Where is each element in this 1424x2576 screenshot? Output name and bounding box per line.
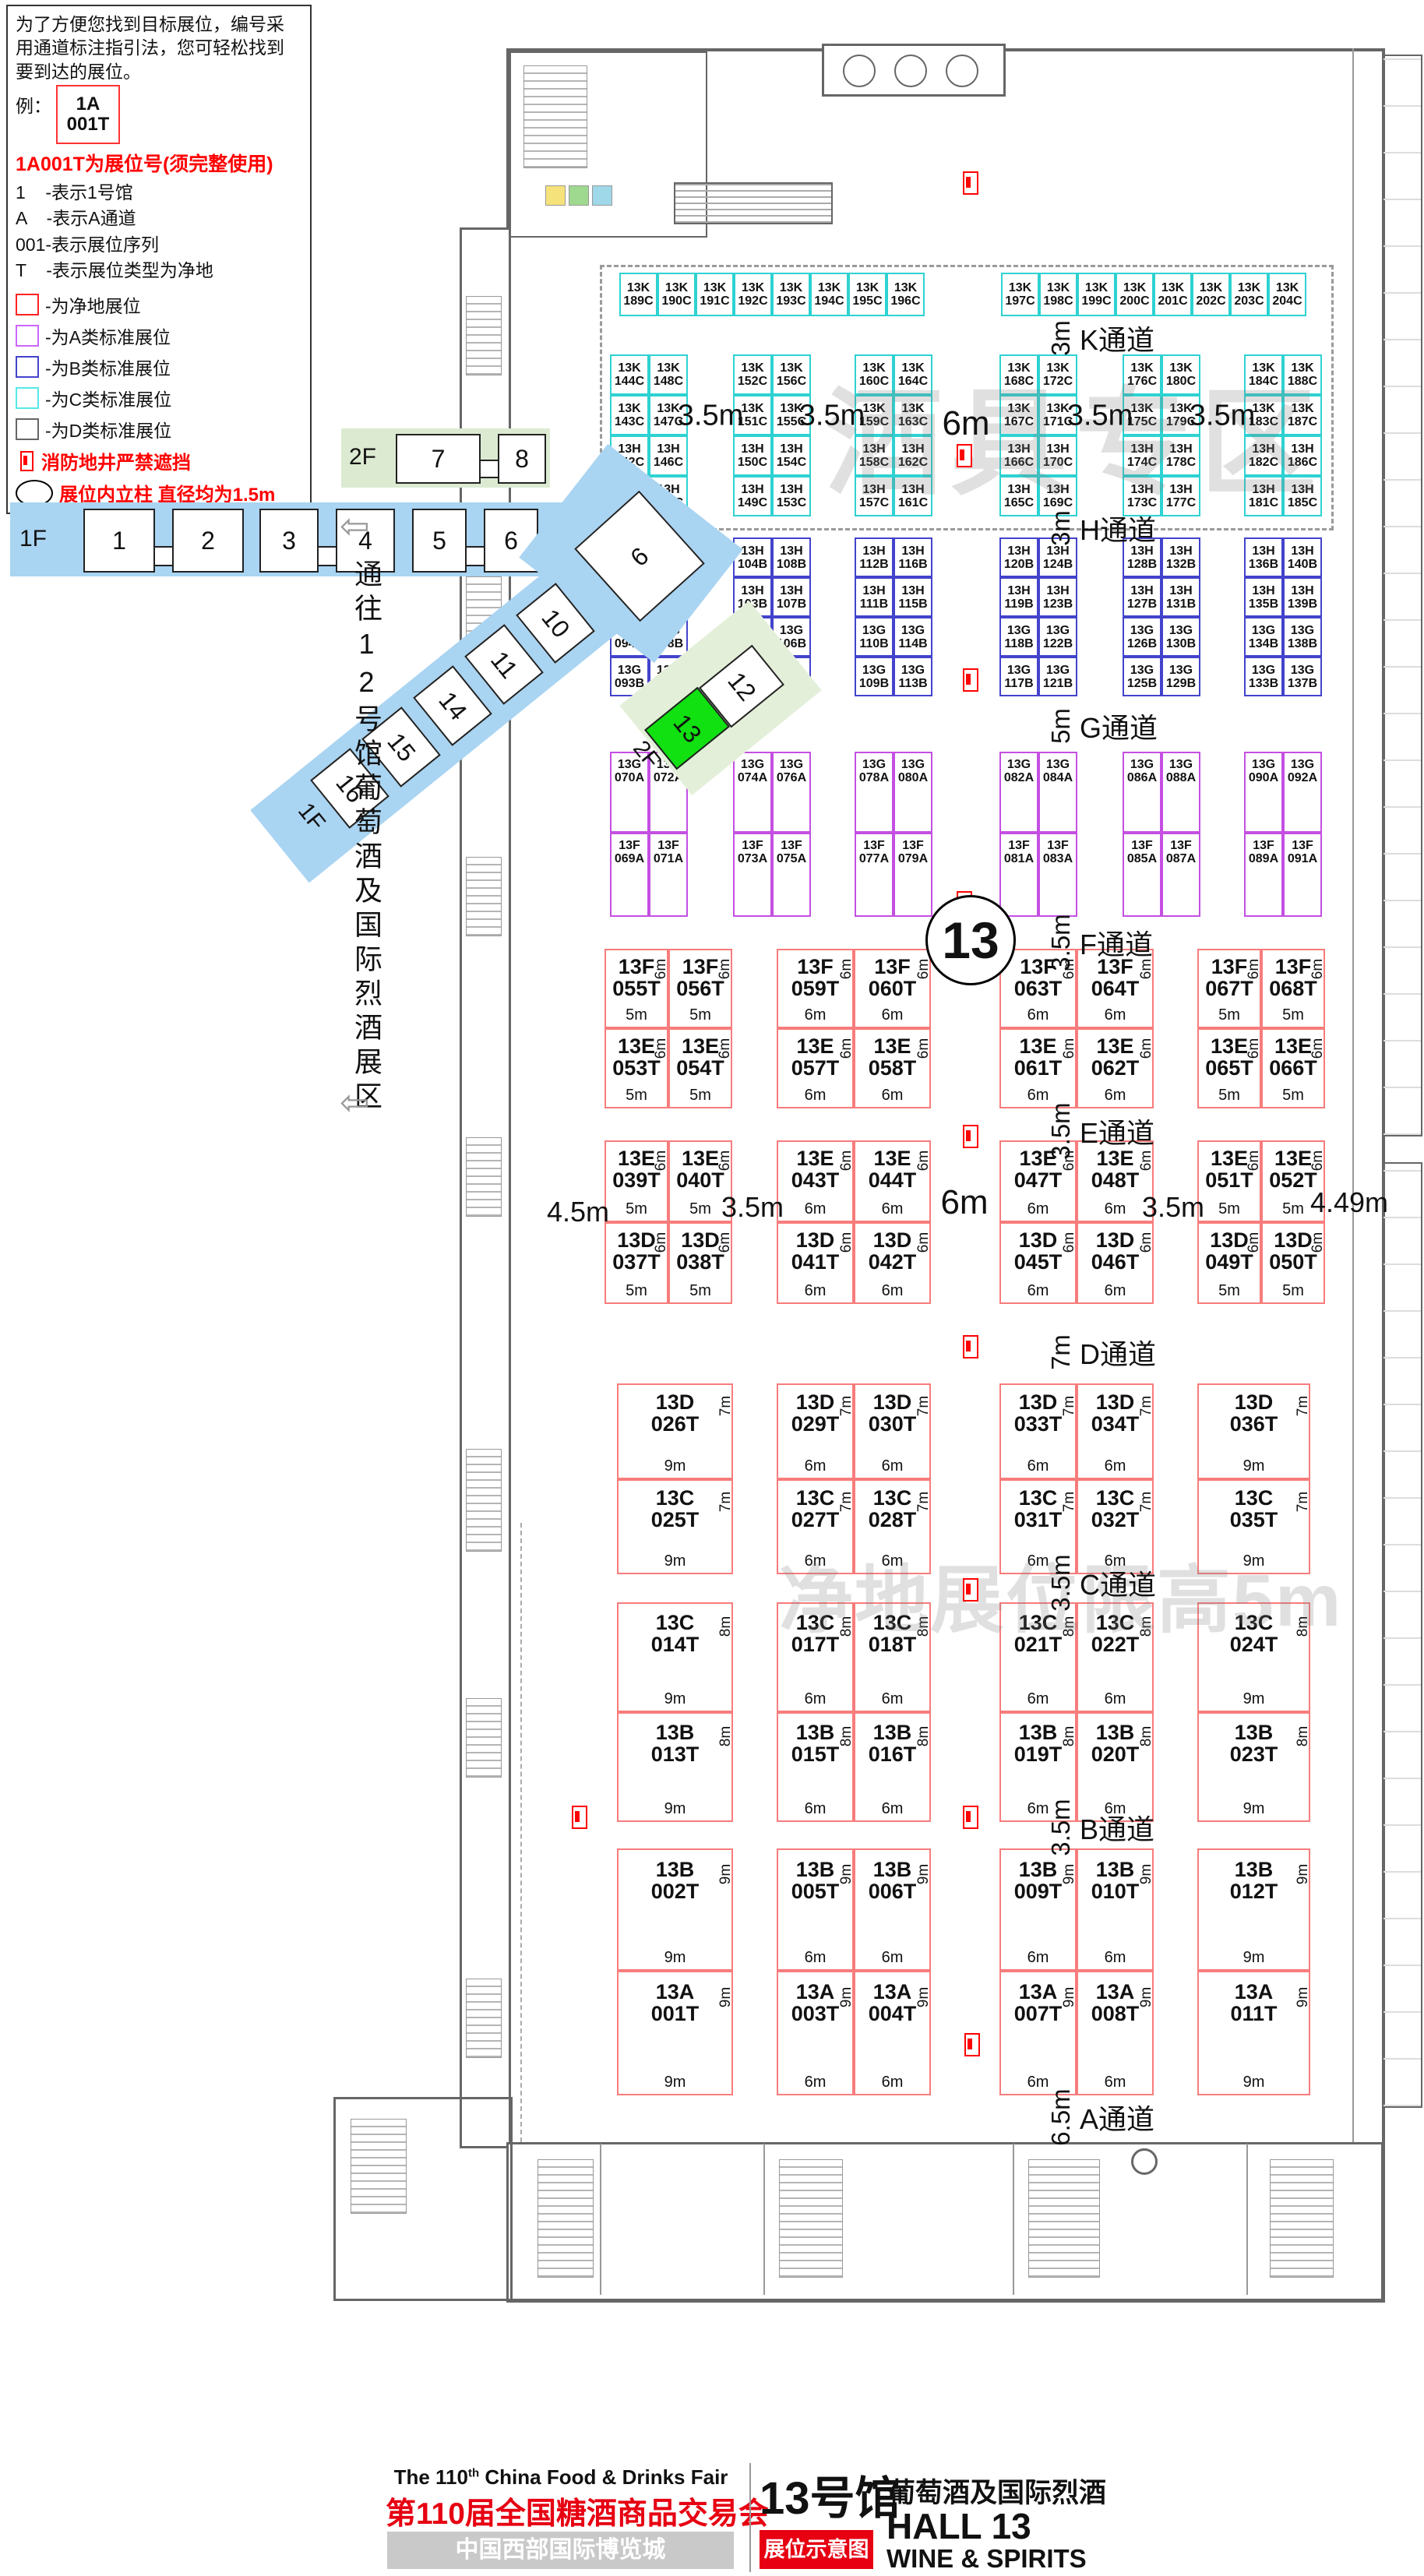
dimension-label: 6m — [940, 1183, 988, 1222]
booth-13B023T: 13B023T8m9m — [1197, 1712, 1310, 1822]
booth-id: 13G074A — [738, 753, 767, 784]
booth-13E065T: 13E065T6m5m — [1197, 1028, 1261, 1108]
booth-13G092A: 13G092A — [1283, 752, 1322, 833]
booth-id: 13G110B — [859, 624, 888, 650]
booth-13D046T: 13D046T6m6m — [1077, 1222, 1154, 1304]
fire-well-icon — [963, 1335, 978, 1358]
booth-id: 13K144C — [615, 361, 644, 388]
hall-right-inner-wall — [1352, 48, 1354, 2296]
legend-swatch-label: -为D类标准展位 — [45, 416, 171, 442]
booth-width-label: 5m — [1263, 1087, 1324, 1105]
booth-13H132B: 13H132B — [1161, 537, 1200, 577]
legend-example-label: 例： — [16, 91, 51, 118]
booth-width-label: 5m — [1263, 1282, 1324, 1300]
booth-width-label: 6m — [1001, 1006, 1075, 1024]
booth-width-label: 6m — [778, 1800, 852, 1818]
booth-13G109B: 13G109B — [855, 657, 894, 696]
booth-13K148C: 13K148C — [649, 354, 688, 395]
booth-13G129B: 13G129B — [1161, 657, 1200, 696]
booth-13F055T: 13F055T6m5m — [604, 949, 668, 1028]
booth-depth-label: 7m — [1295, 1486, 1310, 1517]
aisle-width-K通道: 3m — [1047, 295, 1075, 381]
booth-13G088A: 13G088A — [1161, 752, 1200, 833]
fire-well-icon — [963, 171, 978, 195]
booth-13F069A: 13F069A — [610, 833, 649, 917]
booth-depth-label: 7m — [1295, 1390, 1310, 1422]
booth-depth-label: 9m — [1138, 1859, 1154, 1890]
minimap-hall-8: 8 — [498, 434, 546, 484]
booth-id: 13H146C — [654, 442, 683, 469]
plan-badge: 展位示意图 — [760, 2530, 873, 2569]
booth-id: 13H120B — [1004, 544, 1034, 571]
revolving-door — [894, 55, 927, 87]
booth-id: 13G093B — [615, 664, 644, 690]
booth-13G110B: 13G110B — [855, 617, 894, 657]
booth-width-label: 9m — [619, 1457, 731, 1475]
booth-13C014T: 13C014T8m9m — [617, 1602, 733, 1712]
hall-number-circle: 13 — [925, 895, 1016, 985]
booth-depth-label: 6m — [1246, 1145, 1261, 1176]
booth-width-label: 6m — [778, 1949, 852, 1967]
booth-id: 13G090A — [1249, 753, 1278, 784]
booth-id: 13H149C — [738, 483, 767, 509]
booth-13H115B: 13H115B — [894, 577, 932, 617]
stairwell — [466, 1698, 502, 1778]
booth-id: 13G125B — [1127, 664, 1157, 690]
booth-13F073A: 13F073A — [733, 833, 772, 917]
booth-depth-label: 6m — [653, 1145, 668, 1176]
booth-id: 13G078A — [859, 753, 889, 784]
booth-13H149C: 13H149C — [733, 476, 772, 516]
booth-width-label: 9m — [1199, 1457, 1309, 1475]
booth-width-label: 6m — [1001, 1282, 1075, 1300]
booth-width-label: 5m — [670, 1087, 731, 1105]
booth-depth-label: 6m — [1246, 953, 1261, 985]
booth-width-label: 6m — [778, 1006, 852, 1024]
booth-13D050T: 13D050T6m5m — [1261, 1222, 1325, 1304]
hall-title-en: HALL 13 — [886, 2505, 1031, 2547]
booth-width-label: 5m — [606, 1006, 667, 1024]
stairwell — [538, 2159, 594, 2278]
fire-well-icon — [964, 2033, 980, 2056]
booth-13A004T: 13A004T9m6m — [854, 1971, 931, 2095]
legend-swatch-row: -为A类标准展位 — [16, 322, 302, 349]
hall-title-cn: 13号馆 — [760, 2461, 901, 2527]
booth-depth-label: 9m — [1295, 1859, 1310, 1890]
booth-depth-label: 6m — [838, 1145, 854, 1176]
booth-13G122B: 13G122B — [1038, 617, 1077, 657]
booth-depth-label: 7m — [838, 1390, 854, 1422]
booth-depth-label: 9m — [838, 1982, 854, 2013]
booth-13G082A: 13G082A — [999, 752, 1038, 833]
booth-id: 13F073A — [738, 834, 767, 865]
booth-width-label: 5m — [606, 1282, 667, 1300]
booth-id: 13F077A — [859, 834, 889, 865]
booth-13G086A: 13G086A — [1123, 752, 1161, 833]
aisle-label-K通道: K通道 — [1080, 318, 1154, 358]
legend-swatch-label: -为A类标准展位 — [45, 322, 171, 349]
booth-13H136B: 13H136B — [1244, 537, 1283, 577]
booth-13K201C: 13K201C — [1154, 273, 1192, 316]
booth-id: 13G129B — [1166, 664, 1196, 690]
booth-id: 13H107B — [777, 584, 806, 611]
booth-13B010T: 13B010T9m6m — [1077, 1848, 1154, 1971]
booth-depth-label: 6m — [1309, 1145, 1325, 1176]
minimap-connector — [317, 546, 337, 566]
booth-id: 13A011T — [1199, 1981, 1309, 2025]
booth-13E057T: 13E057T6m6m — [777, 1028, 854, 1108]
booth-13D037T: 13D037T6m5m — [604, 1222, 668, 1304]
booth-depth-label: 9m — [1138, 1982, 1154, 2013]
booth-depth-label: 6m — [915, 1033, 931, 1064]
bottom-room-divider — [1246, 2144, 1248, 2295]
fair-title-cn: 第110届全国糖酒商品交易会 — [386, 2490, 736, 2533]
dimension-label: 3.5m — [799, 400, 865, 433]
booth-depth-label: 8m — [1295, 1721, 1310, 1752]
booth-id: 13H150C — [738, 442, 767, 469]
service-room-marker — [545, 185, 566, 206]
legend-swatch-label: -为B类标准展位 — [45, 354, 171, 380]
booth-id: 13F085A — [1127, 834, 1157, 865]
aisle-width-G通道: 5m — [1047, 683, 1075, 769]
booth-width-label: 6m — [1078, 1006, 1152, 1024]
booth-13E043T: 13E043T6m6m — [777, 1140, 854, 1222]
booth-width-label: 6m — [855, 1949, 929, 1967]
booth-13H131B: 13H131B — [1161, 577, 1200, 617]
booth-depth-label: 6m — [915, 1227, 931, 1258]
stairwell — [523, 65, 587, 168]
aisle-label-E通道: E通道 — [1080, 1111, 1154, 1151]
service-room-marker — [569, 185, 589, 206]
legend-intro-line: 用通道标注指引法，您可轻松找到 — [16, 36, 302, 59]
booth-13G080A: 13G080A — [894, 752, 932, 833]
booth-depth-label: 6m — [838, 1033, 854, 1064]
booth-13B006T: 13B006T9m6m — [854, 1848, 931, 1971]
booth-id: 13H115B — [898, 584, 927, 611]
stairwell — [466, 1137, 502, 1217]
booth-13B005T: 13B005T9m6m — [777, 1848, 854, 1971]
booth-13H127B: 13H127B — [1123, 577, 1161, 617]
booth-13H140B: 13H140B — [1283, 537, 1322, 577]
booth-13E051T: 13E051T6m5m — [1197, 1140, 1261, 1222]
booth-width-label: 5m — [1199, 1006, 1260, 1024]
booth-depth-label: 9m — [838, 1859, 854, 1890]
booth-width-label: 5m — [670, 1006, 731, 1024]
booth-width-label: 6m — [855, 1800, 929, 1818]
booth-13F081A: 13F081A — [999, 833, 1038, 917]
booth-13E039T: 13E039T6m5m — [604, 1140, 668, 1222]
booth-depth-label: 6m — [1061, 1033, 1077, 1064]
booth-13F089A: 13F089A — [1244, 833, 1283, 917]
booth-width-label: 5m — [606, 1087, 667, 1105]
booth-id: 13G113B — [898, 664, 927, 690]
booth-13D026T: 13D026T7m9m — [617, 1383, 733, 1479]
revolving-door — [946, 55, 978, 87]
stairwell — [466, 857, 502, 936]
booth-13A011T: 13A011T9m9m — [1197, 1971, 1310, 2095]
booth-13K203C: 13K203C — [1230, 273, 1268, 316]
booth-id: 13G082A — [1004, 753, 1034, 784]
booth-depth-label: 6m — [653, 1227, 668, 1258]
booth-13E066T: 13E066T6m5m — [1261, 1028, 1325, 1108]
route-arrow-up: ⇦ — [340, 505, 370, 547]
booth-13K152C: 13K152C — [733, 354, 772, 395]
booth-id: 13F075A — [777, 834, 806, 865]
booth-id: 13H111B — [860, 584, 888, 611]
booth-id: 13G109B — [859, 664, 889, 690]
booth-13K190C: 13K190C — [657, 273, 696, 316]
booth-13H108B: 13H108B — [772, 537, 811, 577]
booth-13G090A: 13G090A — [1244, 752, 1283, 833]
booth-width-label: 9m — [619, 2074, 731, 2091]
booth-width-label: 6m — [1078, 1087, 1152, 1105]
legend-swatch-label: -为净地展位 — [45, 291, 141, 318]
booth-depth-label: 9m — [1061, 1982, 1077, 2013]
booth-13E062T: 13E062T6m6m — [1077, 1028, 1154, 1108]
column — [1131, 2148, 1158, 2175]
booth-13E053T: 13E053T6m5m — [604, 1028, 668, 1108]
booth-width-label: 5m — [670, 1282, 731, 1300]
legend-swatch — [16, 387, 39, 409]
booth-width-label: 6m — [1001, 1457, 1075, 1475]
booth-width-label: 6m — [778, 1457, 852, 1475]
booth-13B020T: 13B020T8m6m — [1077, 1712, 1154, 1822]
booth-id: 13K195C — [852, 281, 882, 308]
dimension-label: 3.5m — [1067, 400, 1133, 433]
booth-13D034T: 13D034T7m6m — [1077, 1383, 1154, 1479]
booth-width-label: 5m — [1263, 1006, 1324, 1024]
booth-id: 13H123B — [1043, 584, 1073, 611]
fire-well-icon — [963, 1125, 978, 1148]
booth-13F087A: 13F087A — [1161, 833, 1200, 917]
booth-width-label: 6m — [855, 1690, 929, 1708]
stairwell — [779, 2159, 843, 2278]
bottom-room-divider — [1013, 2144, 1014, 2295]
booth-13F071A: 13F071A — [649, 833, 688, 917]
booth-13H154C: 13H154C — [772, 435, 811, 476]
booth-width-label: 6m — [778, 2074, 852, 2091]
booth-width-label: 6m — [778, 1200, 852, 1218]
booth-13H135B: 13H135B — [1244, 577, 1283, 617]
bottom-rooms — [506, 2142, 1383, 2301]
booth-id: 13H154C — [777, 442, 806, 469]
booth-id: 13F083A — [1043, 834, 1073, 865]
booth-id: 13D036T — [1199, 1391, 1309, 1435]
legend-line: 001-表示展位序列 — [16, 232, 302, 258]
booth-depth-label: 6m — [1309, 1033, 1325, 1064]
booth-13F059T: 13F059T6m6m — [777, 949, 854, 1028]
booth-width-label: 6m — [778, 1087, 852, 1105]
legend-swatch-row: -为C类标准展位 — [16, 385, 302, 411]
booth-id: 13K191C — [700, 281, 729, 308]
booth-13D036T: 13D036T7m9m — [1197, 1383, 1310, 1479]
booth-13B013T: 13B013T8m9m — [617, 1712, 733, 1822]
booth-depth-label: 9m — [717, 1859, 733, 1890]
booth-id: 13G092A — [1288, 753, 1317, 784]
service-room-marker — [592, 185, 612, 206]
booth-width-label: 6m — [1078, 1282, 1152, 1300]
stairwell — [466, 296, 502, 375]
booth-width-label: 6m — [1078, 1949, 1152, 1967]
booth-id: 13K152C — [738, 361, 767, 388]
right-annex-upper — [1382, 55, 1422, 1136]
aisle-width-D通道: 7m — [1047, 1309, 1075, 1395]
booth-id: 13H116B — [898, 544, 927, 571]
stairwell — [1270, 2159, 1334, 2278]
booth-id: 13H108B — [777, 544, 806, 571]
booth-13K204C: 13K204C — [1268, 273, 1306, 316]
booth-depth-label: 7m — [838, 1486, 854, 1517]
bottom-room-divider — [763, 2144, 765, 2295]
booth-id: 13H135B — [1249, 584, 1278, 611]
right-annex-lower — [1382, 1162, 1422, 2108]
booth-depth-label: 6m — [1246, 1227, 1261, 1258]
minimap-hall-2: 2 — [172, 509, 244, 573]
booth-depth-label: 8m — [717, 1611, 733, 1642]
booth-depth-label: 9m — [915, 1859, 931, 1890]
booth-13H119B: 13H119B — [999, 577, 1038, 617]
booth-width-label: 9m — [619, 1949, 731, 1967]
booth-width-label: 6m — [855, 1282, 929, 1300]
booth-id: 13H119B — [1004, 584, 1033, 611]
booth-width-label: 6m — [855, 1200, 929, 1218]
booth-13D033T: 13D033T7m6m — [999, 1383, 1077, 1479]
entrance-ramp — [674, 182, 833, 224]
booth-id: 13K196C — [890, 281, 920, 308]
booth-13K144C: 13K144C — [610, 354, 649, 395]
dimension-label: 4.5m — [547, 1196, 609, 1228]
legend-swatch — [16, 418, 39, 440]
booth-depth-label: 7m — [915, 1486, 931, 1517]
booth-id: 13K201C — [1158, 281, 1187, 308]
booth-id: 13C035T — [1199, 1487, 1309, 1531]
booth-13F060T: 13F060T6m6m — [854, 949, 931, 1028]
booth-depth-label: 6m — [838, 953, 854, 985]
booth-13G076A: 13G076A — [772, 752, 811, 833]
booth-13K199C: 13K199C — [1077, 273, 1116, 316]
booth-id: 13F079A — [898, 834, 928, 865]
booth-depth-label: 6m — [1138, 1227, 1154, 1258]
fire-well-icon — [572, 1806, 587, 1829]
booth-13K193C: 13K193C — [772, 273, 810, 316]
booth-id: 13G118B — [1004, 624, 1033, 650]
dimension-label: 3.5m — [721, 1191, 784, 1224]
booth-id: 13K193C — [776, 281, 805, 308]
booth-depth-label: 8m — [717, 1721, 733, 1752]
hall-subtitle-en: WINE & SPIRITS — [886, 2544, 1087, 2574]
booth-13G117B: 13G117B — [999, 657, 1038, 696]
bottom-room-divider — [600, 2144, 601, 2295]
footer-divider — [749, 2463, 751, 2572]
booth-width-label: 6m — [1078, 2074, 1152, 2091]
minimap-hall-7: 7 — [396, 434, 481, 484]
booth-depth-label: 7m — [915, 1390, 931, 1422]
booth-depth-label: 6m — [717, 1227, 732, 1258]
legend-swatch — [16, 294, 39, 315]
booth-13K189C: 13K189C — [619, 273, 657, 316]
aisle-width-H通道: 3m — [1047, 485, 1075, 571]
booth-id: 13B023T — [1199, 1721, 1309, 1765]
booth-id: 13C014T — [619, 1612, 731, 1655]
booth-depth-label: 9m — [717, 1982, 733, 2013]
booth-depth-label: 7m — [717, 1486, 733, 1517]
booth-width-label: 6m — [1001, 1200, 1075, 1218]
booth-width-label: 5m — [606, 1200, 667, 1218]
booth-width-label: 5m — [1199, 1282, 1260, 1300]
legend-swatch-row: -为净地展位 — [16, 291, 302, 318]
booth-13H150C: 13H150C — [733, 435, 772, 476]
booth-13K196C: 13K196C — [886, 273, 925, 316]
booth-13K191C: 13K191C — [696, 273, 734, 316]
booth-13F077A: 13F077A — [855, 833, 894, 917]
booth-13H111B: 13H111B — [855, 577, 894, 617]
booth-13B002T: 13B002T9m9m — [617, 1848, 733, 1971]
minimap-connector — [153, 546, 174, 566]
legend-example-booth: 1A 001T — [56, 85, 120, 144]
booth-13H104B: 13H104B — [733, 537, 772, 577]
booth-id: 13K189C — [623, 281, 653, 308]
booth-width-label: 6m — [778, 1282, 852, 1300]
stairwell — [1028, 2159, 1100, 2278]
legend-line: 1 -表示1号馆 — [16, 180, 302, 206]
booth-13H120B: 13H120B — [999, 537, 1038, 577]
booth-13K156C: 13K156C — [772, 354, 811, 395]
booth-13E054T: 13E054T6m5m — [668, 1028, 732, 1108]
booth-id: 13F089A — [1249, 834, 1278, 865]
minimap-1f-strip: 1F 1 2 3 4 5 6 — [10, 502, 568, 576]
booth-id: 13G130B — [1166, 624, 1196, 650]
booth-id: 13B002T — [619, 1859, 731, 1902]
booth-13C025T: 13C025T7m9m — [617, 1479, 733, 1574]
booth-width-label: 9m — [619, 1690, 731, 1708]
zone-dashed-line — [520, 1523, 522, 2142]
booth-13B012T: 13B012T9m9m — [1197, 1848, 1310, 1971]
booth-depth-label: 6m — [838, 1227, 854, 1258]
booth-width-label: 9m — [619, 1800, 731, 1818]
legend-swatch-list: -为净地展位-为A类标准展位-为B类标准展位-为C类标准展位-为D类标准展位 — [16, 291, 302, 442]
booth-13K192C: 13K192C — [734, 273, 772, 316]
booth-id: 13K203C — [1234, 281, 1264, 308]
booth-13D042T: 13D042T6m6m — [854, 1222, 931, 1304]
fair-title-en: The 110th China Food & Drinks Fair — [386, 2465, 736, 2490]
booth-id: 13F069A — [615, 834, 644, 865]
booth-13A008T: 13A008T9m6m — [1077, 1971, 1154, 2095]
booth-id: 13G134B — [1249, 624, 1278, 650]
booth-13B015T: 13B015T8m6m — [777, 1712, 854, 1822]
booth-depth-label: 6m — [1138, 1033, 1154, 1064]
aisle-label-H通道: H通道 — [1080, 508, 1156, 548]
booth-depth-label: 9m — [1295, 1982, 1310, 2013]
booth-13G134B: 13G134B — [1244, 617, 1283, 657]
booth-id: 13G138B — [1288, 624, 1317, 650]
booth-13E058T: 13E058T6m6m — [854, 1028, 931, 1108]
fire-well-icon — [20, 451, 33, 471]
booth-depth-label: 8m — [1061, 1721, 1077, 1752]
booth-id: 13F071A — [654, 834, 683, 865]
booth-13G113B: 13G113B — [894, 657, 932, 696]
booth-13H116B: 13H116B — [894, 537, 932, 577]
booth-13H153C: 13H153C — [772, 476, 811, 516]
dimension-label: 3.5m — [1190, 400, 1255, 433]
booth-13F085A: 13F085A — [1123, 833, 1161, 917]
booth-id: 13H112B — [859, 544, 888, 571]
booth-depth-label: 6m — [717, 1033, 732, 1064]
booth-width-label: 6m — [1001, 1690, 1075, 1708]
dimension-label: 6m — [942, 404, 989, 443]
booth-id: 13G086A — [1127, 753, 1157, 784]
booth-depth-label: 8m — [1138, 1721, 1154, 1752]
legend-swatch — [16, 325, 39, 347]
